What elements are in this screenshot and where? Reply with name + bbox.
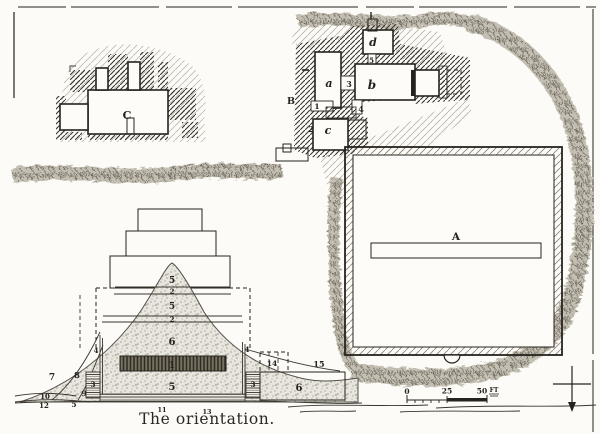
label-plan-1: 1 — [314, 102, 319, 111]
figure-caption: The orientation. — [139, 410, 275, 428]
temple-room-b — [355, 64, 415, 100]
label-plan-4: 4 — [358, 104, 364, 114]
label-layer-0: 5 — [169, 276, 175, 286]
label-layer-1: 2 — [170, 287, 175, 296]
site-plan-drawing: C B d 5 a 3 b 1 4 2 — [0, 0, 600, 434]
scrub-band-top — [298, 18, 468, 22]
north-arrow-icon — [553, 366, 591, 412]
label-right-6: 6 — [296, 383, 303, 394]
label-building-c: C — [123, 109, 132, 122]
building-c-side-room — [60, 104, 88, 130]
scale-unit: FT — [490, 387, 499, 394]
label-room-c: c — [325, 124, 332, 137]
label-plan-5: 5 — [369, 56, 374, 65]
label-layer-5: 1 — [169, 361, 175, 371]
label-right-15: 15 — [313, 359, 324, 369]
label-right-3: 3 — [250, 380, 255, 389]
building-c-plan: C — [56, 44, 206, 142]
section-base-course — [100, 394, 245, 401]
label-right-14: 14 — [267, 359, 277, 368]
label-left-8: 8 — [74, 371, 80, 381]
label-enclosure-a: A — [451, 231, 461, 243]
label-layer-6: 5 — [169, 382, 176, 393]
label-layer-3: 2 — [170, 315, 175, 324]
scrub-band-left — [12, 170, 282, 176]
label-left-10: 10 — [40, 392, 50, 401]
label-right-4: 4 — [245, 345, 250, 354]
label-layer-2: 5 — [169, 302, 175, 312]
label-room-d: d — [369, 36, 377, 49]
label-layer-4: 6 — [169, 337, 176, 348]
label-left-5: 5 — [71, 400, 76, 409]
scale-zero: 0 — [404, 387, 409, 396]
scale-bar: 0 25 50 FT — [400, 387, 520, 413]
enclosure-a-interior — [353, 155, 554, 347]
enclosure-a-plan: A — [345, 147, 562, 363]
label-room-a: a — [325, 77, 332, 90]
label-left-12: 12 — [39, 401, 49, 410]
label-left-4: 4 — [94, 346, 99, 355]
label-room-b: b — [368, 78, 376, 92]
temple-room-d — [363, 30, 393, 54]
label-left-9: 9 — [81, 389, 86, 398]
scanned-figure-page: C B d 5 a 3 b 1 4 2 — [0, 0, 600, 434]
enclosure-a-gateway — [444, 355, 460, 363]
label-plan-3: 3 — [346, 79, 352, 89]
pyramid-section: 5 2 5 2 6 1 5 7 8 9 10 12 5 3 4 4 3 14 1… — [15, 209, 362, 416]
scale-end: 50 — [477, 387, 487, 396]
label-temple-b: B — [287, 96, 295, 107]
label-left-7: 7 — [49, 373, 55, 383]
label-plan-2: 2 — [308, 124, 314, 134]
temple-room-b-extension — [415, 70, 439, 96]
scale-mid: 25 — [442, 387, 452, 396]
label-left-3: 3 — [90, 380, 95, 389]
